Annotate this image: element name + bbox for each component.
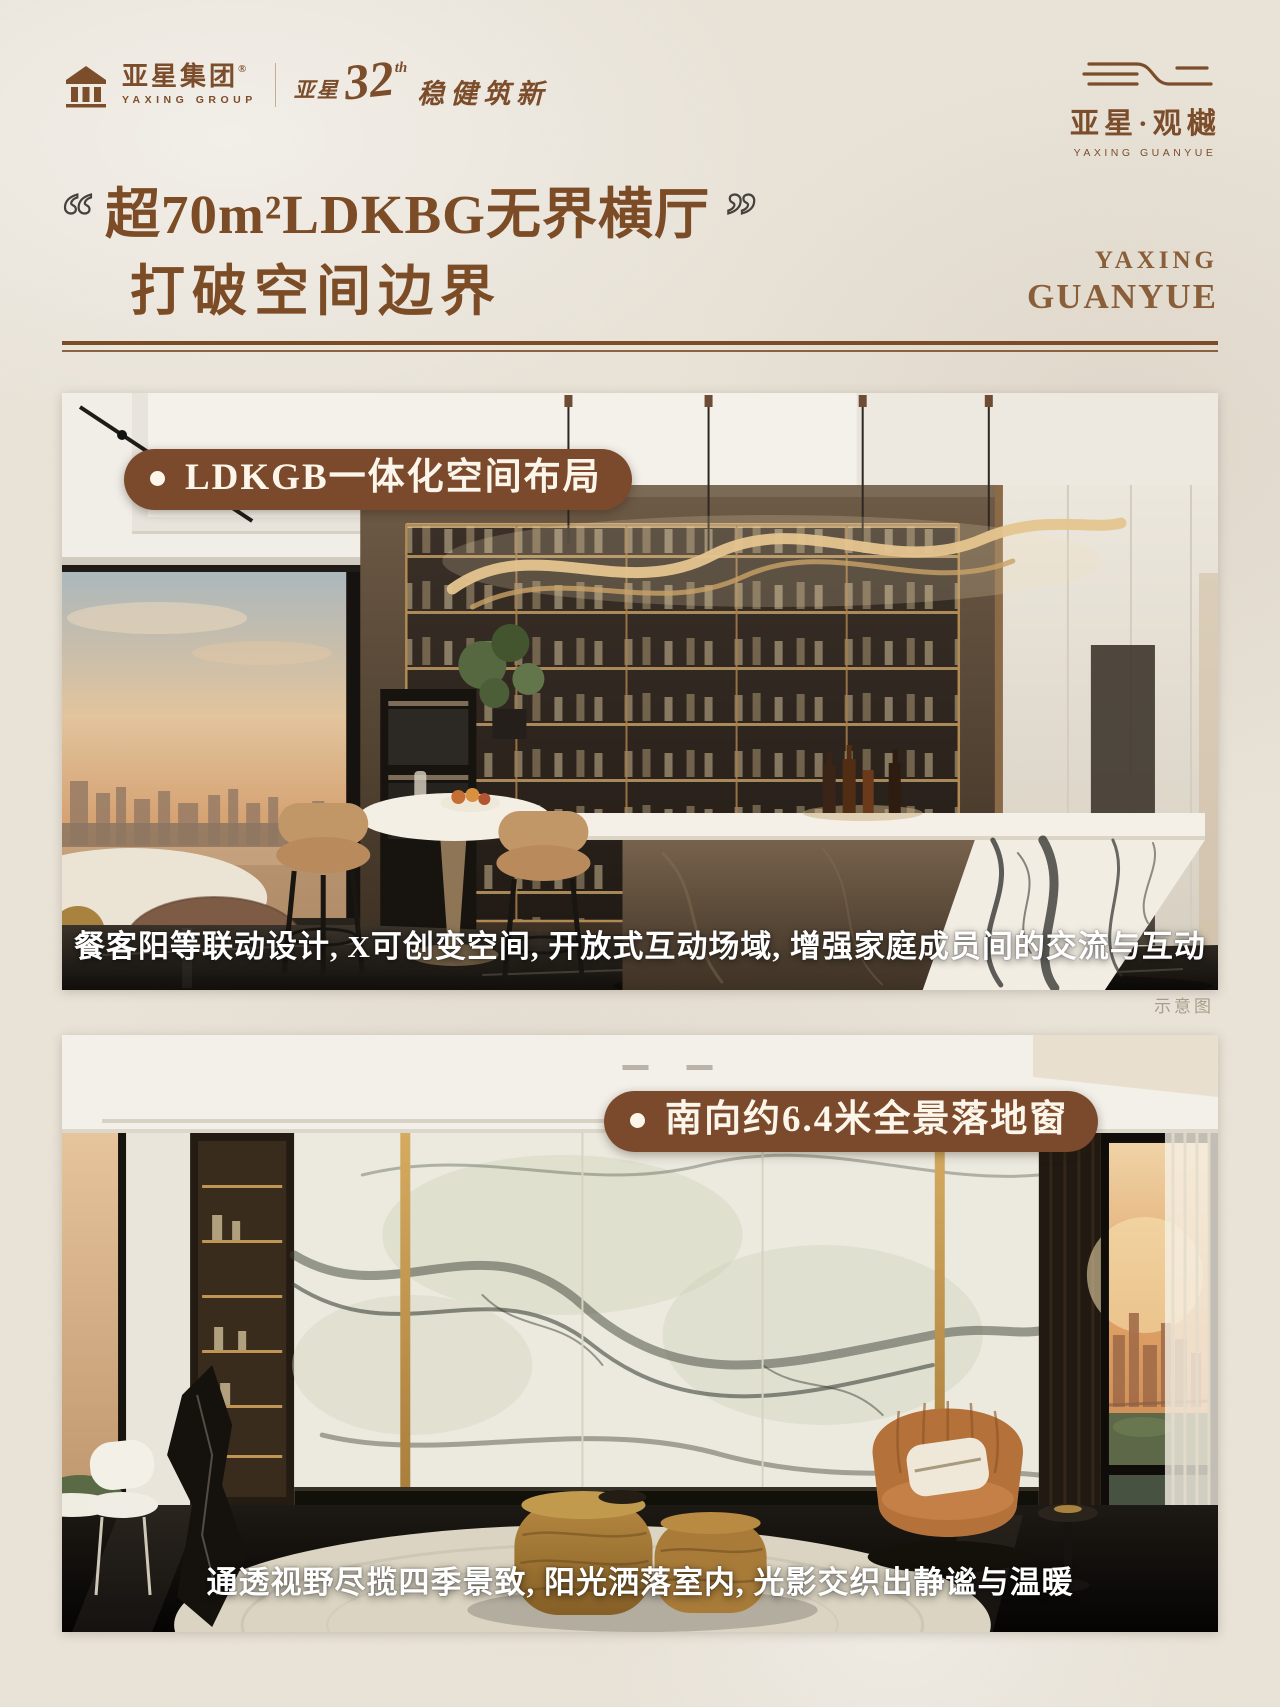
anniversary-slogan: 稳健筑新 [417, 72, 549, 111]
livingroom-render-image: 南向约6.4米全景落地窗 通透视野尽揽四季景致, 阳光洒落室内, 光影交织出静谧… [62, 1035, 1218, 1632]
headline-side-en: YAXING GUANYUE [1027, 247, 1218, 317]
hero-headline-block: “ 超70m²LDKBG无界横厅 ” 打破空间边界 YAXING GUANYUE [62, 183, 1218, 323]
schematic-watermark: 示意图 [1154, 992, 1214, 1017]
feature-badge-window: 南向约6.4米全景落地窗 [604, 1091, 1098, 1152]
caramel-armchair [868, 1401, 1028, 1573]
close-quote-icon: ” [726, 189, 753, 245]
header-divider [275, 63, 276, 107]
developer-logo-text: 亚星集团® YAXING GROUP [122, 64, 257, 106]
headline-text-1: 超70m²LDKBG无界横厅 [105, 183, 710, 246]
anniversary-prefix: 亚星 [294, 74, 340, 104]
side-en-yaxing: YAXING [1027, 247, 1218, 275]
poster-page: 亚星集团® YAXING GROUP 亚星 32 th 稳健筑新 亚星·观樾 Y… [0, 0, 1280, 1707]
anniversary-number: 32 [342, 56, 396, 106]
project-name-cn: 亚星·观樾 [1070, 100, 1220, 142]
side-en-guanyue: GUANYUE [1027, 277, 1218, 317]
badge-bullet-icon [150, 471, 165, 486]
project-logo: 亚星·观樾 YAXING GUANYUE [1070, 56, 1220, 159]
developer-name-en: YAXING GROUP [122, 94, 257, 106]
open-quote-icon: “ [62, 189, 89, 245]
registered-mark: ® [238, 63, 249, 75]
project-name-en: YAXING GUANYUE [1070, 147, 1220, 159]
anniversary-suffix: th [395, 60, 408, 77]
badge-label: 南向约6.4米全景落地窗 [665, 1099, 1068, 1142]
roofline-logo-icon [1077, 56, 1213, 96]
kitchen-render-image: LDKGB一体化空间布局 餐客阳等联动设计, X可创变空间, 开放式互动场域, … [62, 393, 1218, 990]
badge-bullet-icon [630, 1113, 645, 1128]
yaxing-group-building-icon [62, 61, 110, 109]
feature-badge-ldkgb: LDKGB一体化空间布局 [124, 449, 632, 510]
headline-line1: “ 超70m²LDKBG无界横厅 ” [62, 183, 1218, 246]
figure1-caption: 餐客阳等联动设计, X可创变空间, 开放式互动场域, 增强家庭成员间的交流与互动 [62, 921, 1218, 966]
double-rule-divider [62, 341, 1218, 352]
badge-label: LDKGB一体化空间布局 [185, 457, 602, 500]
figure2-caption: 通透视野尽揽四季景致, 阳光洒落室内, 光影交织出静谧与温暖 [62, 1557, 1218, 1602]
anniversary-calligraphy: 亚星 32 th 稳健筑新 [294, 58, 550, 111]
developer-logo-group: 亚星集团® YAXING GROUP 亚星 32 th 稳健筑新 [62, 58, 549, 111]
developer-name-cn: 亚星集团® [122, 64, 257, 90]
